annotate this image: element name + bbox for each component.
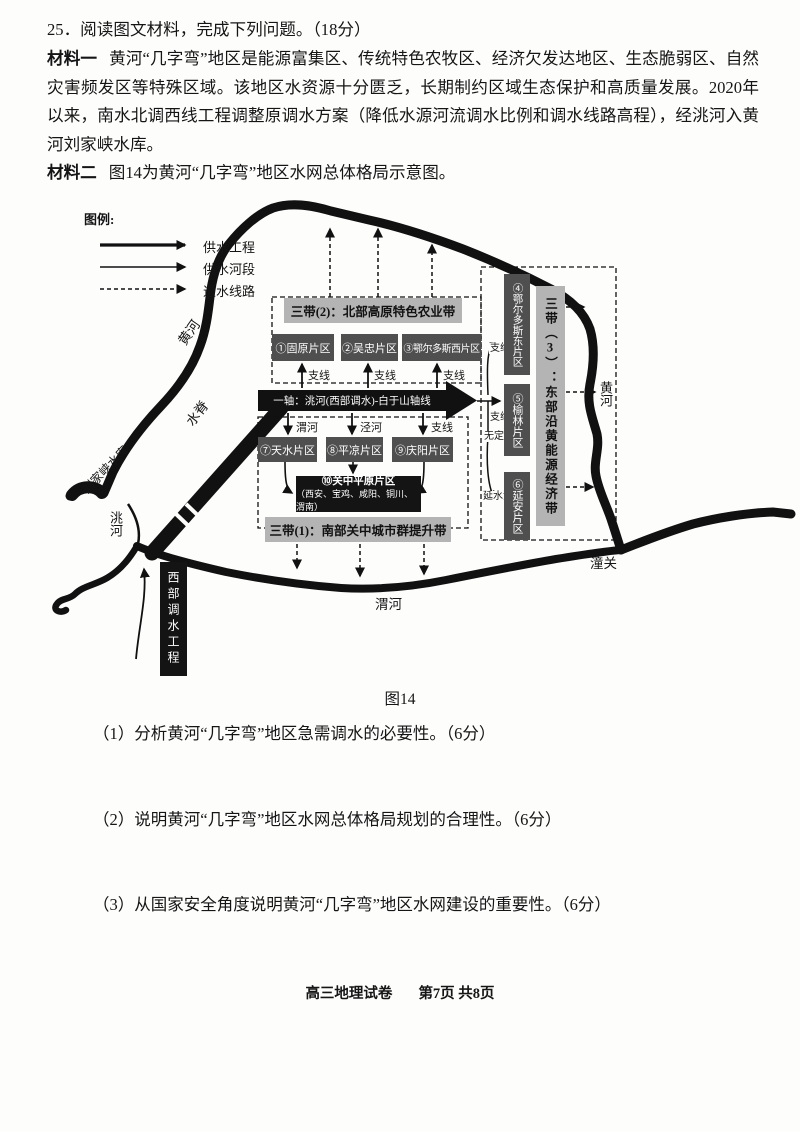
figure-caption: 图14 [340,687,460,709]
yellow-river-east [621,512,791,550]
footer-page-number: 第7页 共8页 [418,986,494,1002]
question-intro: 25．阅读图文材料，完成下列问题。（18分） 材料一黄河“几字弯”地区是能源富集… [47,16,759,187]
west-diversion-project-box: 西部调水工程 [160,562,187,676]
question-title: 25．阅读图文材料，完成下列问题。（18分） [47,16,759,44]
material-2: 材料二图14为黄河“几字弯”地区水网总体格局示意图。 [47,159,759,187]
material-2-text: 图14为黄河“几字弯”地区水网总体格局示意图。 [109,163,456,182]
material-2-label: 材料二 [47,163,97,182]
zone5-yulin: ⑤榆林片区 [504,384,530,456]
material-1-label: 材料一 [47,49,97,68]
belt3-east-energy-band: 三带（3）：东部沿黄能源经济带 [536,286,565,526]
legend-item-supply-reach: 供水河段 [203,259,255,278]
zone9-qingyang: ⑨庆阳片区 [392,437,453,462]
belt1-south-guanzhong-band: 三带(1)：南部关中城市群提升带 [265,517,451,542]
weihe-branch-label: 渭河 [296,419,318,435]
branch-label-3: 支线 [443,367,465,383]
zone10-cities: （西安、宝鸡、咸阳、铜川、渭南） [296,488,421,514]
legend-item-return-route: 退水线路 [203,281,255,300]
zone1-guyuan: ①固原片区 [272,334,334,361]
west-diversion-arrow [136,569,145,659]
weihe-river-label: 渭河 [375,593,402,613]
yellow-river-east-label: 黄河 [596,381,615,417]
question-2: （2）说明黄河“几字弯”地区水网总体格局规划的合理性。（6分） [93,806,561,830]
zone10-title: ⑩关中平原片区 [322,475,396,488]
page-footer: 高三地理试卷第7页 共8页 [0,982,800,1003]
branch-label-2: 支线 [374,367,396,383]
zone4-ordos-east: ④鄂尔多斯东片区 [504,274,530,375]
zone2-wuzhong: ②吴忠片区 [341,334,398,361]
legend-item-supply-project: 供水工程 [203,237,255,256]
branch-label-4: 支线 [431,419,453,435]
material-1-text: 黄河“几字弯”地区是能源富集区、传统特色农牧区、经济欠发达地区、生态脆弱区、自然… [47,49,759,153]
question-1: （1）分析黄河“几字弯”地区急需调水的必要性。（6分） [93,720,495,744]
taohe-river-line [128,504,139,544]
tongguan-label: 潼关 [590,552,617,572]
zone7-tianshui: ⑦天水片区 [258,437,317,462]
axis-arrowhead [446,381,477,420]
exam-page: 25．阅读图文材料，完成下列问题。（18分） 材料一黄河“几字弯”地区是能源富集… [0,0,800,1131]
material-1: 材料一黄河“几字弯”地区是能源富集区、传统特色农牧区、经济欠发达地区、生态脆弱区… [47,45,759,159]
water-spine-arrow [152,408,281,553]
zone10-guanzhong-plain: ⑩关中平原片区 （西安、宝鸡、咸阳、铜川、渭南） [296,476,421,512]
legend-title: 图例: [84,209,114,228]
zone7-to-zone10-arrow [285,462,292,493]
branch-label-1: 支线 [308,367,330,383]
weihe-river [137,546,621,589]
zone6-yanan: ⑥延安片区 [504,472,530,540]
axis-label: 一轴：洮河(西部调水)-白于山轴线 [258,390,446,411]
zone8-pingliang: ⑧平凉片区 [326,437,383,462]
weihe-upper-squiggle [55,546,137,612]
figure-14-map: 图例: 供水工程 供水河段 退水线路 三带(2)：北部高原特色农业带 ①固原片区… [0,195,800,707]
footer-exam-name: 高三地理试卷 [305,986,392,1002]
question-3: （3）从国家安全角度说明黄河“几字弯”地区水网建设的重要性。（6分） [93,891,611,915]
east-branch-down-zone6 [487,436,499,498]
jinghe-branch-label: 泾河 [360,419,382,435]
zone3-ordos-west: ③鄂尔多斯西片区 [402,334,481,361]
taohe-label: 洮河 [106,511,125,547]
belt2-north-agriculture-band: 三带(2)：北部高原特色农业带 [284,298,462,323]
